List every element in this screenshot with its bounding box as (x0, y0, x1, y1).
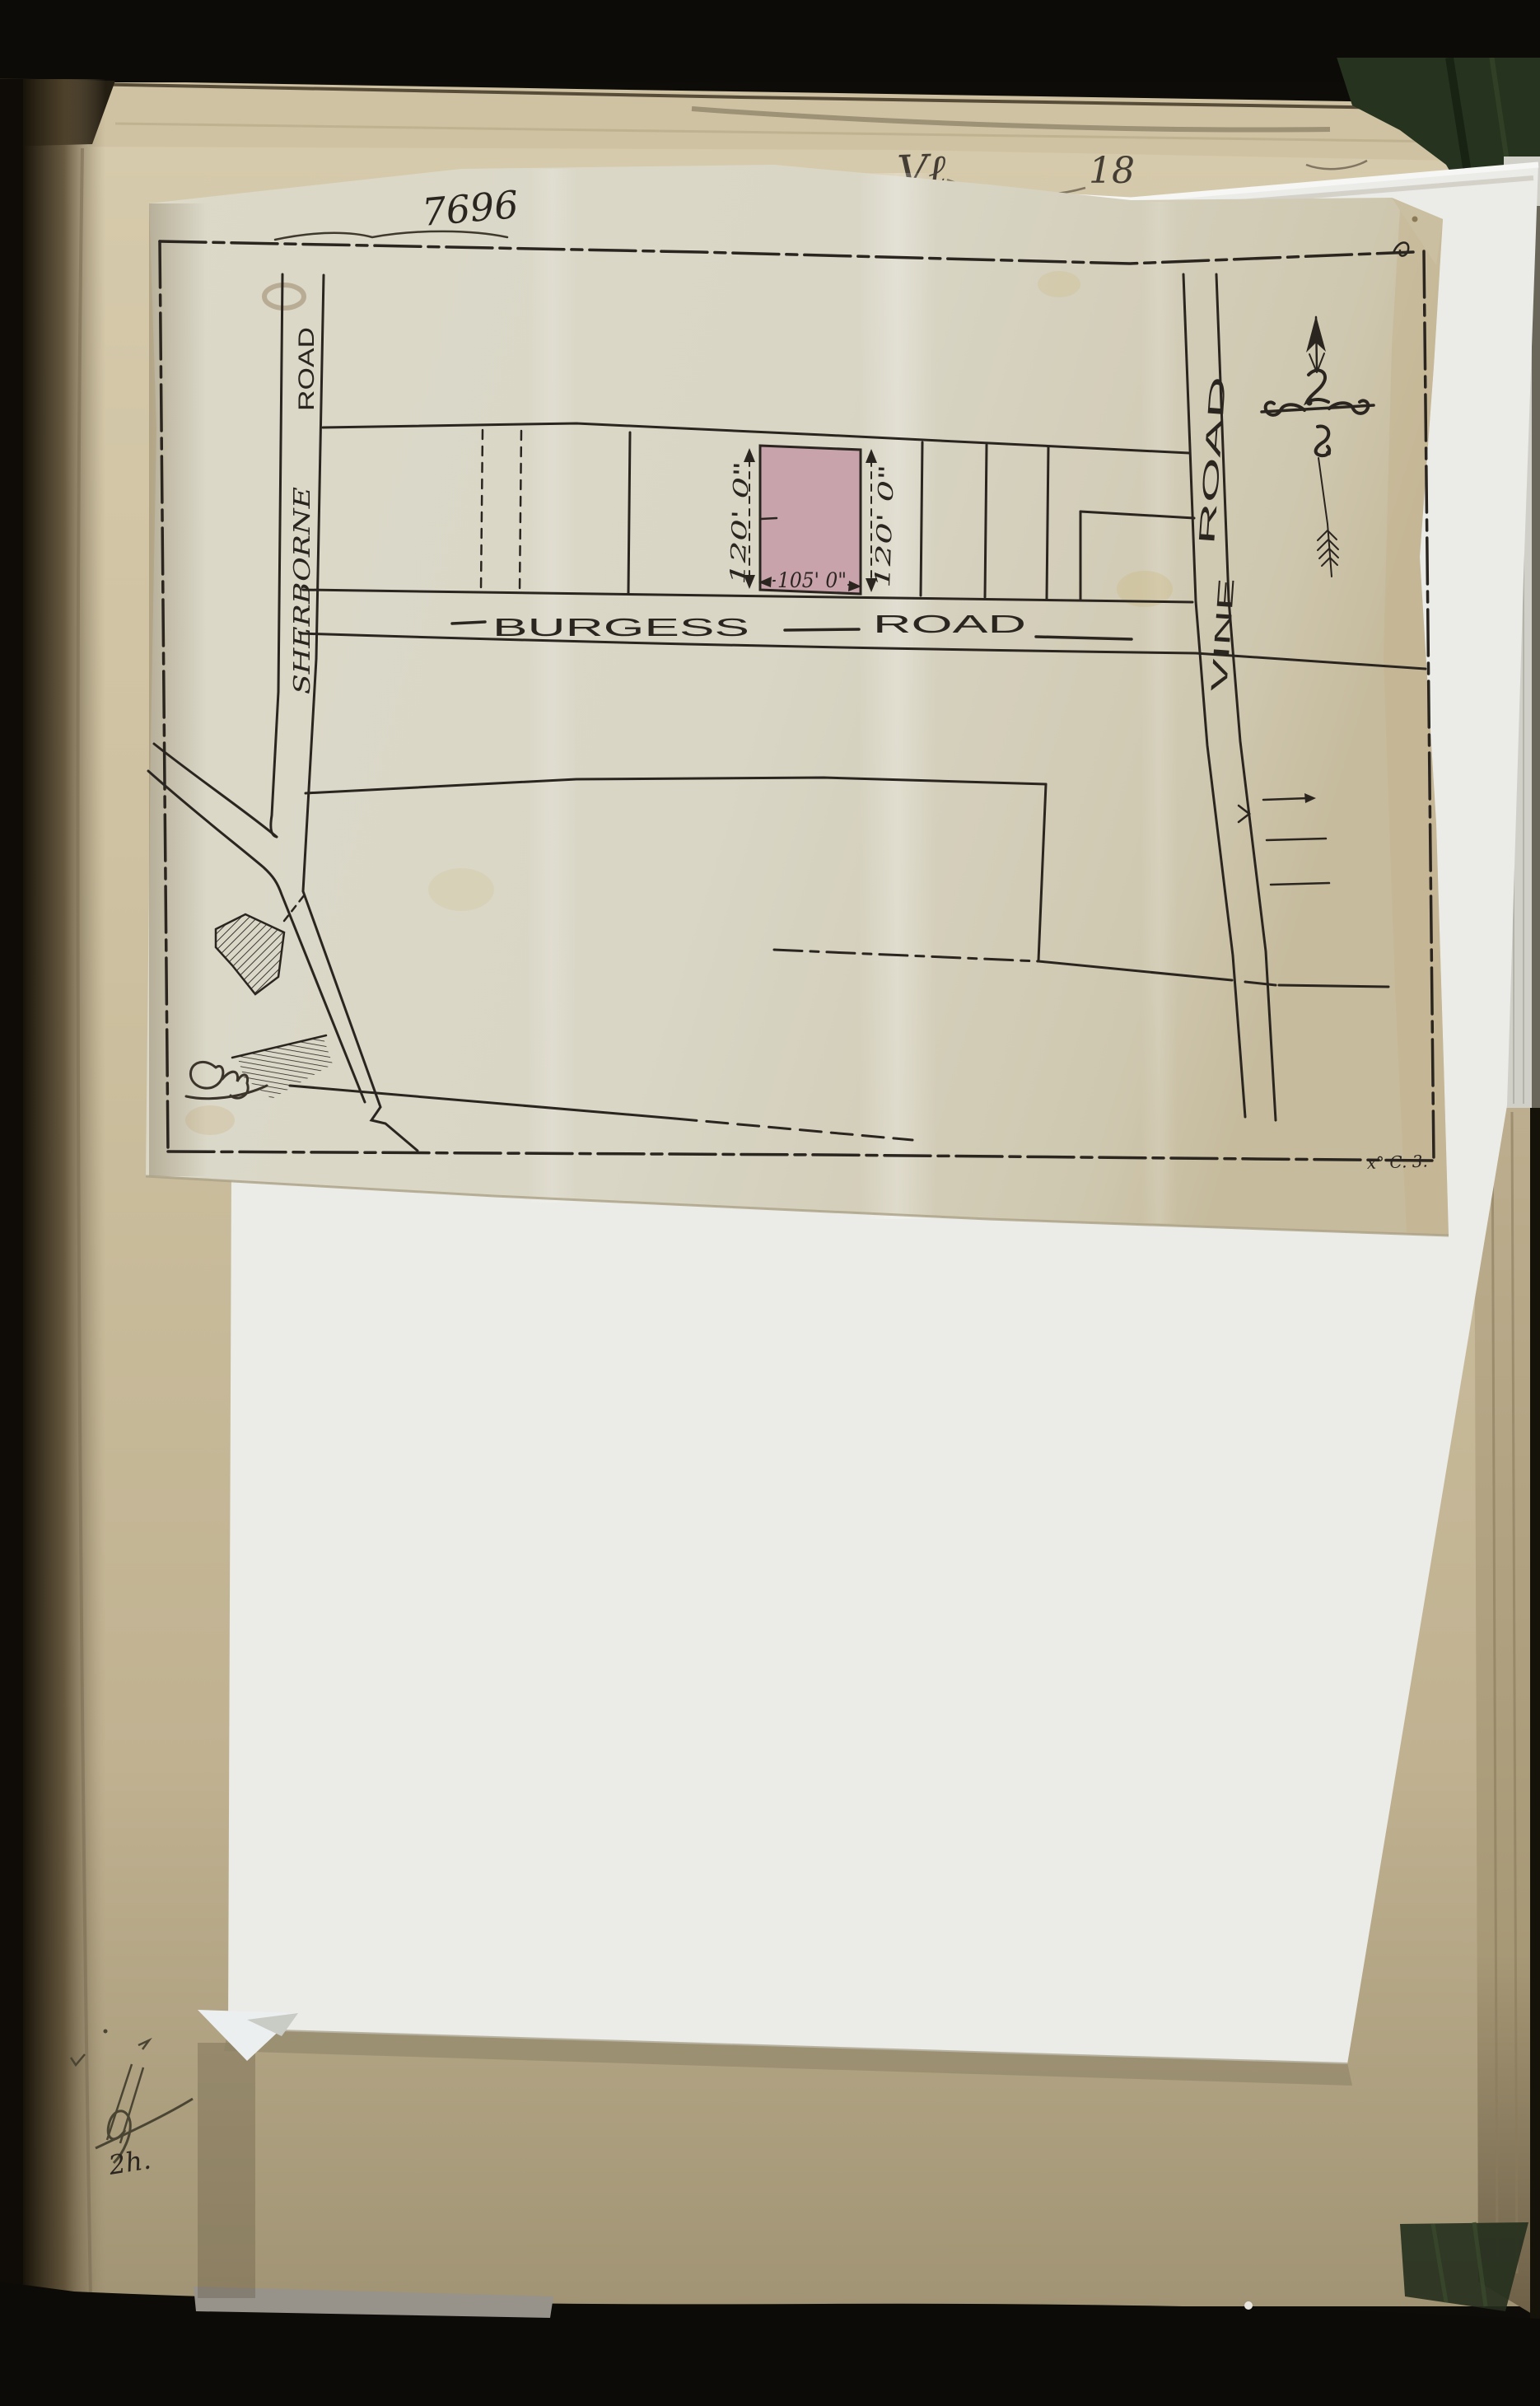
plot-line-4 (1047, 446, 1048, 599)
scanned-book-page: Vℓ 18 2h. (0, 0, 1540, 2406)
pencil-dot (104, 2030, 108, 2034)
sheet-crease-band-2 (527, 169, 576, 1203)
sheet-corner-note: x° C. 3. (1366, 1151, 1428, 1173)
burgess-label-dash-middle (785, 629, 859, 630)
sherborne-road-label-word2: ROAD (294, 327, 319, 411)
inscription-fragment-right: 18 (1089, 150, 1135, 192)
dim-label-frontage: 105' 0" (777, 568, 847, 592)
left-gutter (0, 79, 105, 2320)
plan-number: 7696 (420, 182, 520, 235)
plot-edge-tick (761, 518, 777, 519)
plot-line-2 (921, 442, 922, 596)
top-dark-band (0, 0, 1540, 82)
yellow-stain-4 (185, 1105, 235, 1135)
sheet-crease-band-1 (858, 173, 936, 1219)
burgess-label-dash-left (452, 622, 485, 624)
plot-line-1 (628, 432, 630, 593)
yellow-stain-3 (428, 868, 494, 911)
yellow-stain-2 (1038, 271, 1080, 297)
dim-label-left: 120' 0" (726, 460, 754, 585)
sheet-left-fold-shade (149, 203, 207, 1176)
sheet-pin-mark (1412, 217, 1418, 222)
plot-line-3 (985, 445, 987, 597)
page-crease-shadow (198, 2043, 255, 2298)
pencil-note: 2h. (105, 2143, 152, 2181)
dim-label-right: 120' 0" (870, 464, 898, 588)
burgess-road-label-word1: BURGESS (492, 613, 749, 642)
tracing-paper-body (146, 165, 1449, 1236)
scan-canvas: Vℓ 18 2h. (0, 0, 1540, 2406)
sheet-crease-band-3 (1141, 202, 1178, 1223)
burgess-road-label-word2: ROAD (873, 610, 1026, 638)
tracing-paper-sheet (146, 165, 1449, 1236)
